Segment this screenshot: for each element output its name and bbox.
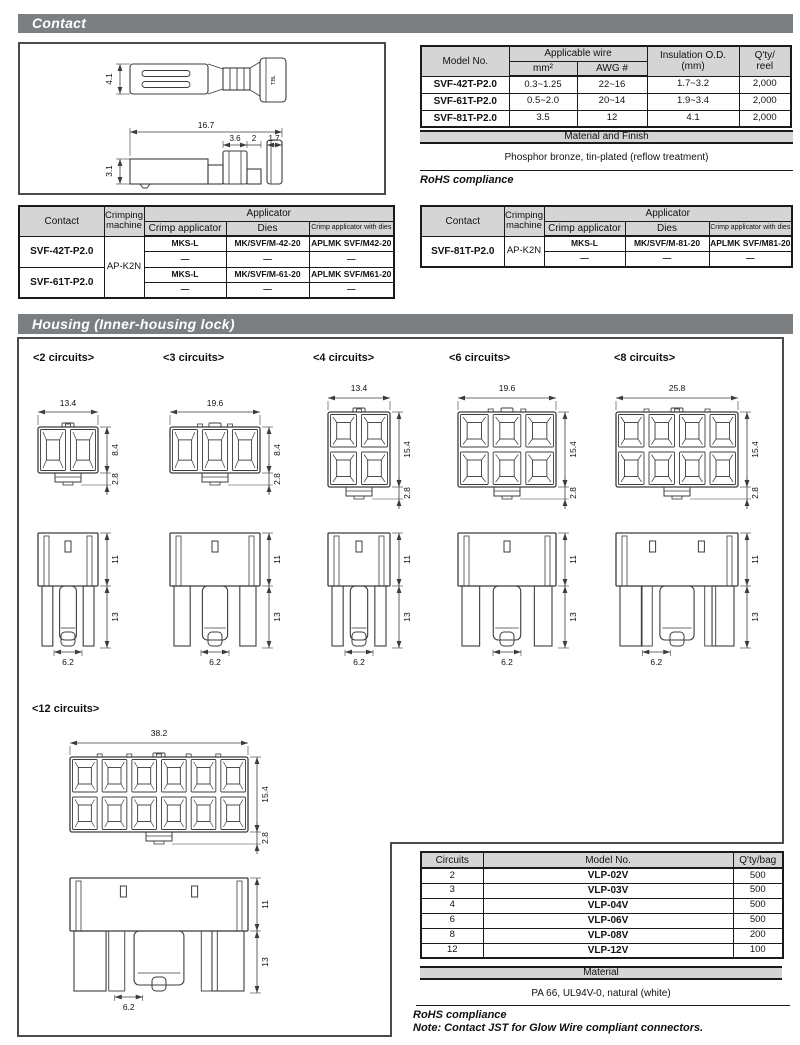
svg-text:13: 13 — [750, 612, 760, 622]
svg-text:8.4: 8.4 — [272, 444, 282, 456]
housing-drawing-12-circuits: 38.215.42.811136.2 — [62, 725, 302, 1023]
svg-text:2.8: 2.8 — [260, 832, 270, 844]
svg-text:2.8: 2.8 — [272, 473, 282, 485]
svg-text:6.2: 6.2 — [353, 657, 365, 667]
svg-text:13: 13 — [260, 957, 270, 967]
table-cell: VLP-04V — [483, 898, 733, 913]
svg-text:15.4: 15.4 — [750, 441, 760, 458]
housing-material-text: PA 66, UL94V-0, natural (white) — [420, 988, 782, 999]
svg-text:11: 11 — [750, 555, 760, 564]
circuits-label-6: <6 circuits> — [449, 352, 510, 364]
svg-text:15.4: 15.4 — [568, 441, 578, 458]
table-cell: 4 — [421, 898, 483, 913]
housing-drawing-4-circuits: 13.415.42.811136.2 — [320, 380, 444, 678]
svg-text:6.2: 6.2 — [209, 657, 221, 667]
circuits-label-4: <4 circuits> — [313, 352, 374, 364]
table-cell: 2 — [421, 868, 483, 883]
table-cell: Q'ty/bag — [733, 852, 783, 868]
circuits-label-2: <2 circuits> — [33, 352, 94, 364]
svg-text:11: 11 — [272, 555, 282, 564]
housing-drawing-8-circuits: 25.815.42.811136.2 — [608, 380, 792, 678]
svg-text:2.8: 2.8 — [568, 487, 578, 499]
glow-wire-note: Note: Contact JST for Glow Wire complian… — [413, 1022, 793, 1034]
svg-text:15.4: 15.4 — [402, 441, 412, 458]
table-cell: 100 — [733, 943, 783, 958]
circuits-label-8: <8 circuits> — [614, 352, 675, 364]
rohs-compliance-housing: RoHS compliance — [413, 1009, 793, 1021]
table-cell: 500 — [733, 883, 783, 898]
svg-text:6.2: 6.2 — [501, 657, 513, 667]
table-cell: 500 — [733, 913, 783, 928]
table-cell: VLP-12V — [483, 943, 733, 958]
svg-text:2.8: 2.8 — [402, 487, 412, 499]
svg-text:13.4: 13.4 — [351, 383, 368, 393]
table-cell: 200 — [733, 928, 783, 943]
svg-text:11: 11 — [110, 555, 120, 564]
table-cell: Model No. — [483, 852, 733, 868]
table-cell: 8 — [421, 928, 483, 943]
svg-text:38.2: 38.2 — [151, 728, 168, 738]
svg-text:13: 13 — [110, 612, 120, 622]
svg-text:6.2: 6.2 — [62, 657, 74, 667]
table-cell: 500 — [733, 898, 783, 913]
table-cell: VLP-03V — [483, 883, 733, 898]
table-cell: 12 — [421, 943, 483, 958]
circuits-label-3: <3 circuits> — [163, 352, 224, 364]
svg-text:8.4: 8.4 — [110, 444, 120, 456]
svg-text:6.2: 6.2 — [123, 1002, 135, 1012]
circuits-label-12: <12 circuits> — [32, 703, 99, 715]
svg-text:11: 11 — [402, 555, 412, 564]
svg-text:2.8: 2.8 — [110, 473, 120, 485]
table-cell: VLP-06V — [483, 913, 733, 928]
svg-text:19.6: 19.6 — [207, 398, 224, 408]
housing-parts-table: CircuitsModel No.Q'ty/bag2VLP-02V5003VLP… — [420, 851, 782, 959]
svg-text:13: 13 — [272, 612, 282, 622]
svg-text:13: 13 — [402, 612, 412, 622]
housing-material-bar: Material — [420, 966, 782, 980]
housing-drawing-2-circuits: 13.48.42.811136.2 — [30, 380, 152, 678]
svg-text:2.8: 2.8 — [750, 487, 760, 499]
svg-text:19.6: 19.6 — [499, 383, 516, 393]
table-cell: Circuits — [421, 852, 483, 868]
table-cell: 500 — [733, 868, 783, 883]
divider-line — [416, 1005, 790, 1006]
table-cell: 6 — [421, 913, 483, 928]
table-cell: VLP-08V — [483, 928, 733, 943]
svg-text:11: 11 — [568, 555, 578, 564]
svg-text:25.8: 25.8 — [669, 383, 686, 393]
housing-drawing-6-circuits: 19.615.42.811136.2 — [450, 380, 610, 678]
housing-drawing-3-circuits: 19.68.42.811136.2 — [162, 380, 314, 678]
svg-text:13: 13 — [568, 612, 578, 622]
table-cell: 3 — [421, 883, 483, 898]
svg-text:15.4: 15.4 — [260, 786, 270, 803]
svg-text:13.4: 13.4 — [60, 398, 77, 408]
svg-text:6.2: 6.2 — [650, 657, 662, 667]
svg-text:11: 11 — [260, 900, 270, 909]
table-cell: VLP-02V — [483, 868, 733, 883]
